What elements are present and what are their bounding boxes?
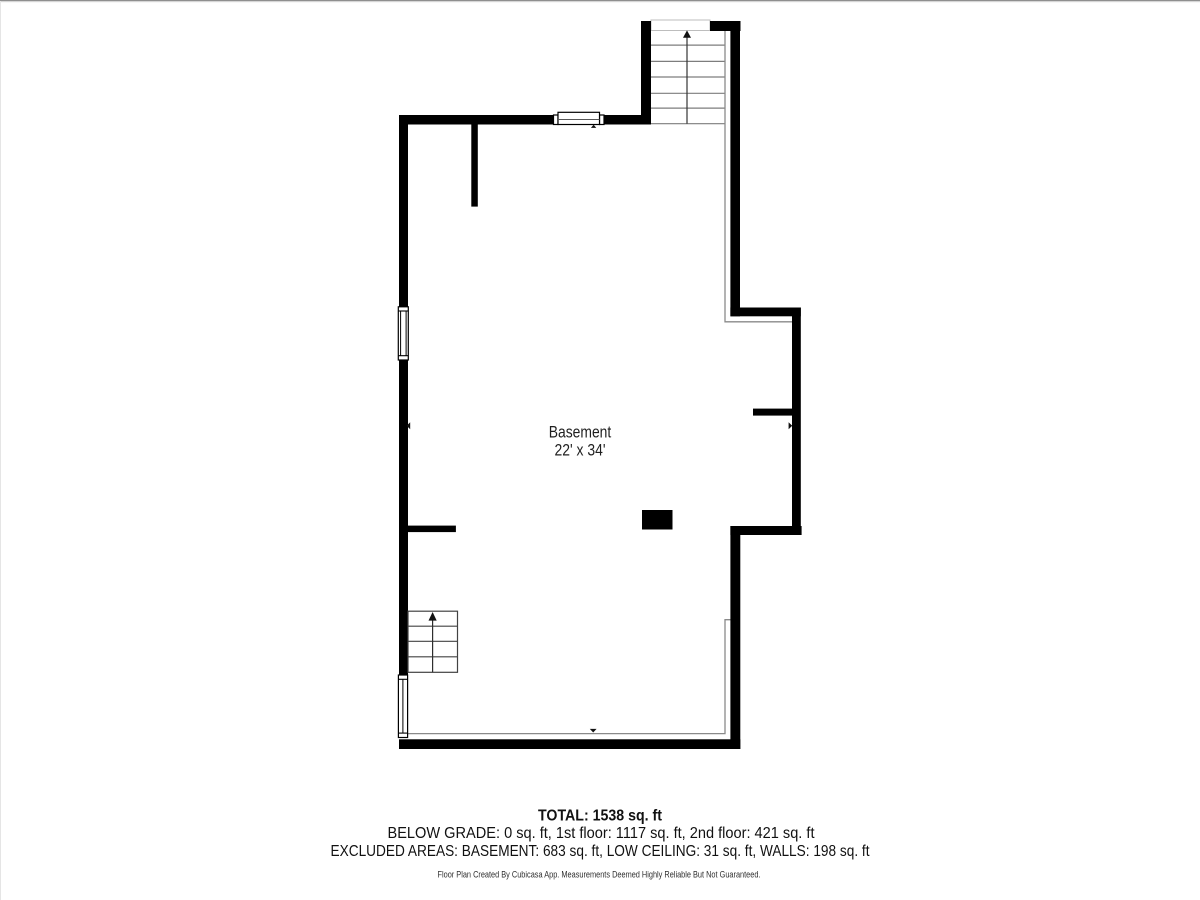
svg-text:Basement: Basement bbox=[549, 424, 612, 442]
svg-text:BELOW GRADE: 0 sq. ft, 1st flo: BELOW GRADE: 0 sq. ft, 1st floor: 1117 s… bbox=[388, 825, 816, 842]
svg-text:Floor Plan Created By Cubicasa: Floor Plan Created By Cubicasa App. Meas… bbox=[438, 869, 761, 879]
svg-text:EXCLUDED AREAS: BASEMENT: 683: EXCLUDED AREAS: BASEMENT: 683 sq. ft, LO… bbox=[331, 843, 871, 860]
svg-text:22' x 34': 22' x 34' bbox=[555, 441, 606, 459]
svg-text:TOTAL: 1538 sq. ft: TOTAL: 1538 sq. ft bbox=[538, 807, 662, 824]
